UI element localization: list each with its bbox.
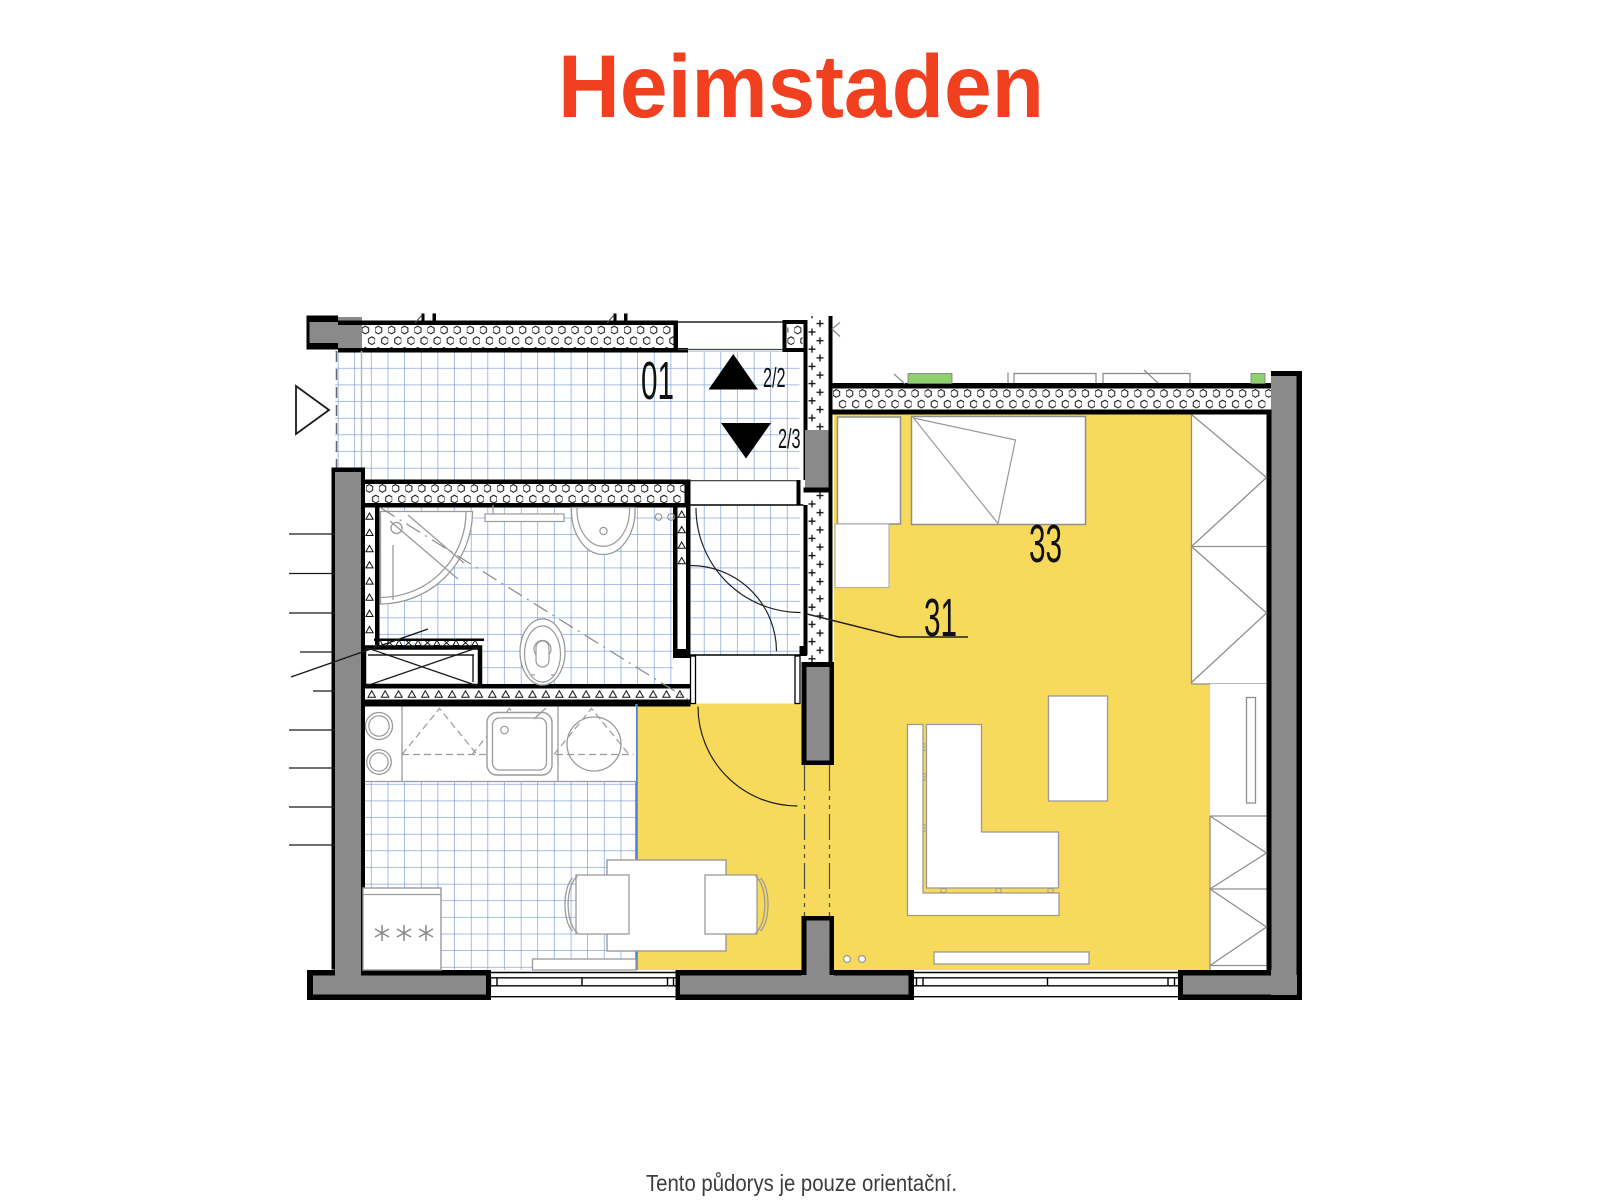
svg-text:2/2: 2/2 xyxy=(763,361,786,393)
svg-text:Tento půdorys je pouze orienta: Tento půdorys je pouze orientační. xyxy=(646,1170,957,1196)
svg-text:31: 31 xyxy=(924,589,957,648)
svg-text:01: 01 xyxy=(641,352,674,411)
svg-text:2/3: 2/3 xyxy=(778,422,801,454)
svg-text:33: 33 xyxy=(1029,515,1062,574)
svg-text:Heimstaden: Heimstaden xyxy=(558,36,1044,136)
